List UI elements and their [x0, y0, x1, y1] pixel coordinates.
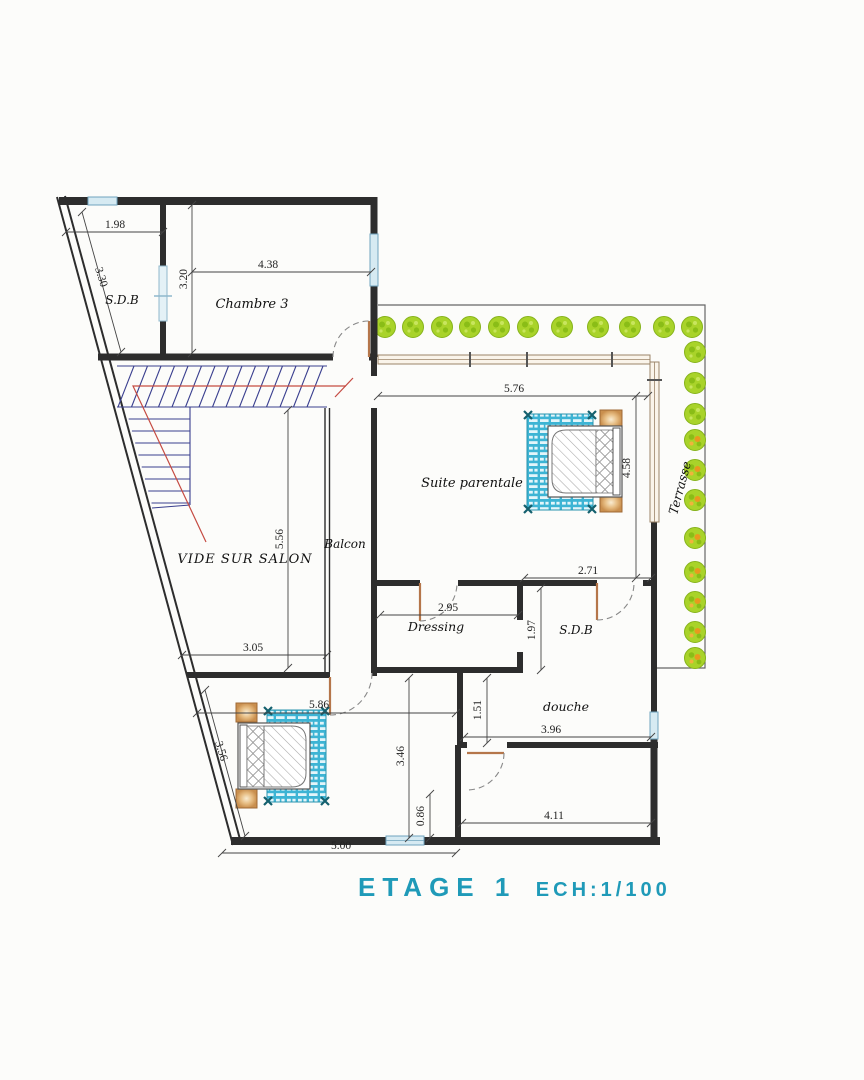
dimension-value: 3.30 [92, 266, 109, 289]
dimension-d-197: 1.97 [526, 584, 545, 674]
room-label-sdb-master: S.D.B [559, 623, 593, 637]
nightstand [236, 703, 257, 722]
room-label-sdb-top: S.D.B [105, 293, 139, 307]
dimension-value: 3.96 [541, 724, 561, 736]
window-douche [650, 712, 658, 739]
tree-icon [588, 317, 609, 338]
bed-pillows [247, 726, 264, 787]
plan-title: ETAGE 1 ECH:1/100 [358, 872, 671, 903]
dimension-value: 5.76 [504, 383, 524, 395]
dimension-value: 2.71 [578, 565, 598, 577]
tree-icon [682, 317, 703, 338]
dimension-d-396: 3.96 [460, 724, 655, 741]
dimension-d-151: 1.51 [472, 674, 491, 747]
tree-icon [685, 648, 706, 669]
tree-icon [685, 622, 706, 643]
dimension-d-411: 4.11 [458, 810, 655, 827]
dimension-annotations: 1.983.303.204.385.764.582.712.951.971.51… [62, 201, 655, 857]
tree-icon [685, 404, 706, 425]
bed-headboard [240, 725, 247, 787]
bed-pillows [596, 430, 613, 493]
room-label-vide-sur-salon: VIDE SUR SALON [177, 552, 312, 567]
room-label-suite-parentale: Suite parentale [421, 476, 523, 491]
tree-icon [518, 317, 539, 338]
tree-icon [432, 317, 453, 338]
dimension-d-198: 1.98 [62, 219, 167, 236]
dimension-value: 3.05 [243, 642, 263, 654]
dimension-d-438: 4.38 [188, 259, 375, 276]
tree-icon [460, 317, 481, 338]
bed-mattress [552, 430, 596, 493]
dimension-value: 2.95 [438, 602, 458, 614]
walls [57, 196, 660, 845]
dimension-value: 1.51 [472, 700, 484, 720]
tree-icon [685, 342, 706, 363]
tree-icon [685, 373, 706, 394]
tree-icon [375, 317, 396, 338]
tree-icon [685, 430, 706, 451]
door-arc-sdb-master [597, 583, 634, 620]
stair-direction-line [133, 386, 346, 542]
room-label-dressing: Dressing [407, 619, 464, 634]
tree-icon [620, 317, 641, 338]
bed-mattress [264, 726, 306, 787]
tree-icon [685, 490, 706, 511]
nightstand [236, 789, 257, 808]
dimension-value: 5.86 [309, 699, 329, 711]
dimension-value: 3.20 [178, 269, 190, 289]
dimension-d-295: 2.95 [376, 602, 522, 619]
door-arc-bedroom2 [330, 673, 372, 715]
tree-icon [685, 562, 706, 583]
dimension-value: 5.00 [331, 840, 351, 852]
dimension-value: 3.46 [395, 746, 407, 766]
floor-plan-page: 1.983.303.204.385.764.582.712.951.971.51… [0, 0, 864, 1080]
dimension-value: 3.56 [212, 740, 229, 763]
dimension-value: 4.11 [544, 810, 564, 822]
bed-master [524, 410, 622, 513]
tree-icon [489, 317, 510, 338]
dimension-d-346: 3.46 [395, 674, 413, 842]
dimension-d-086: 0.86 [415, 790, 434, 842]
room-label-balcon: Balcon [323, 537, 365, 551]
bed-second [236, 703, 329, 808]
tree-icon [685, 592, 706, 613]
dimension-value: 5.56 [274, 529, 286, 549]
door-arc-chambre3 [333, 321, 369, 357]
bed-headboard [613, 428, 620, 495]
dimension-value: 4.38 [258, 259, 278, 271]
dimension-d-556: 5.56 [274, 406, 292, 672]
plan-title-text: ETAGE 1 [358, 872, 516, 902]
tree-icon [654, 317, 675, 338]
dimension-d-305: 3.05 [178, 642, 331, 659]
window-top-left [88, 197, 117, 205]
room-label-chambre-3: Chambre 3 [215, 297, 288, 312]
door-arc-lower-room [467, 753, 504, 790]
tree-icon [403, 317, 424, 338]
room-label-douche: douche [543, 699, 589, 714]
dimension-d-320: 3.20 [178, 201, 196, 357]
dimension-value: 1.97 [526, 620, 538, 640]
dimension-d-458: 4.58 [621, 392, 640, 582]
dimension-d-576: 5.76 [374, 383, 652, 400]
window-chambre3-right [370, 234, 378, 286]
dimension-value: 0.86 [415, 806, 427, 826]
tree-icon [685, 528, 706, 549]
dimension-value: 1.98 [105, 219, 125, 231]
floor-plan-drawing: 1.983.303.204.385.764.582.712.951.971.51… [0, 0, 864, 1080]
window-sdb-partition [159, 266, 167, 321]
dimension-value: 4.58 [621, 458, 633, 478]
tree-icon [552, 317, 573, 338]
plan-scale-text: ECH:1/100 [536, 879, 671, 901]
